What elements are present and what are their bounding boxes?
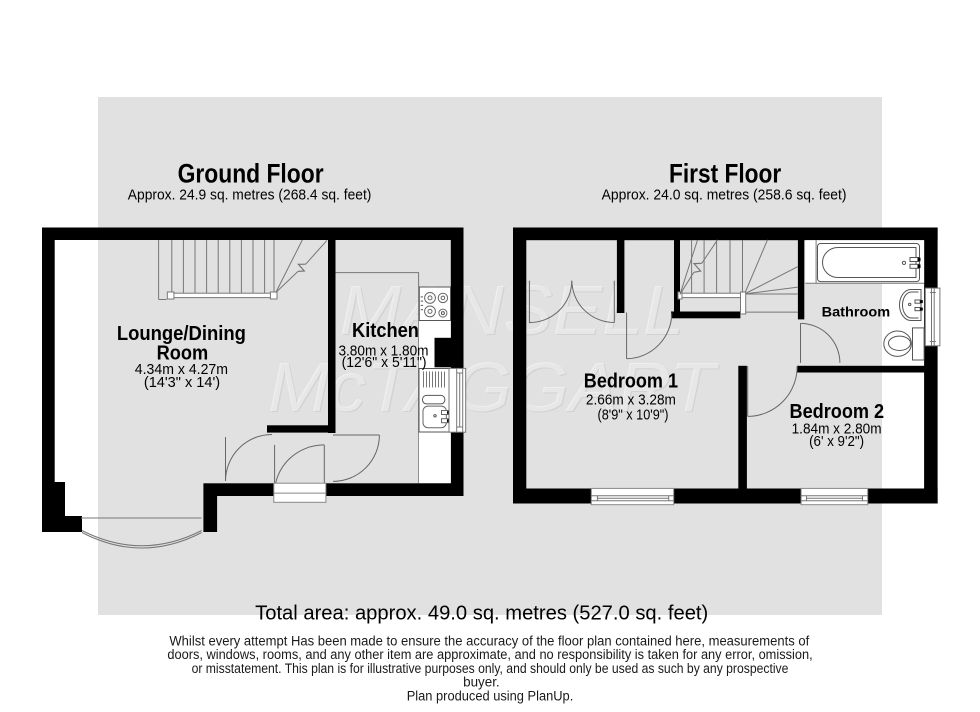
svg-text:Ground Floor: Ground Floor	[178, 158, 324, 188]
svg-text:Approx. 24.0 sq. metres (258.6: Approx. 24.0 sq. metres (258.6 sq. feet)	[602, 187, 847, 203]
svg-text:Approx. 24.9 sq. metres (268.4: Approx. 24.9 sq. metres (268.4 sq. feet)	[128, 187, 372, 203]
svg-text:2.66m x 3.28m: 2.66m x 3.28m	[586, 393, 676, 409]
svg-text:First Floor: First Floor	[669, 158, 782, 188]
svg-text:Kitchen: Kitchen	[352, 320, 419, 342]
svg-text:(14'3" x 14'): (14'3" x 14')	[144, 375, 220, 391]
svg-text:Bathroom: Bathroom	[822, 303, 891, 319]
svg-text:(6' x 9'2"): (6' x 9'2")	[809, 434, 864, 450]
svg-text:Whilst every attempt Has been: Whilst every attempt Has been made to en…	[169, 633, 809, 648]
svg-text:(8'9" x 10'9"): (8'9" x 10'9")	[598, 407, 669, 423]
svg-text:Bedroom 1: Bedroom 1	[584, 371, 678, 393]
svg-text:buyer.: buyer.	[463, 675, 499, 690]
svg-text:Total area: approx. 49.0 sq. m: Total area: approx. 49.0 sq. metres (527…	[255, 603, 708, 625]
svg-text:Bedroom 2: Bedroom 2	[790, 401, 885, 423]
svg-text:doors, windows, rooms, and any: doors, windows, rooms, and any other ite…	[167, 647, 812, 662]
svg-text:(12'6" x 5'11"): (12'6" x 5'11")	[342, 355, 427, 371]
svg-text:Plan produced using PlanUp.: Plan produced using PlanUp.	[407, 688, 574, 703]
